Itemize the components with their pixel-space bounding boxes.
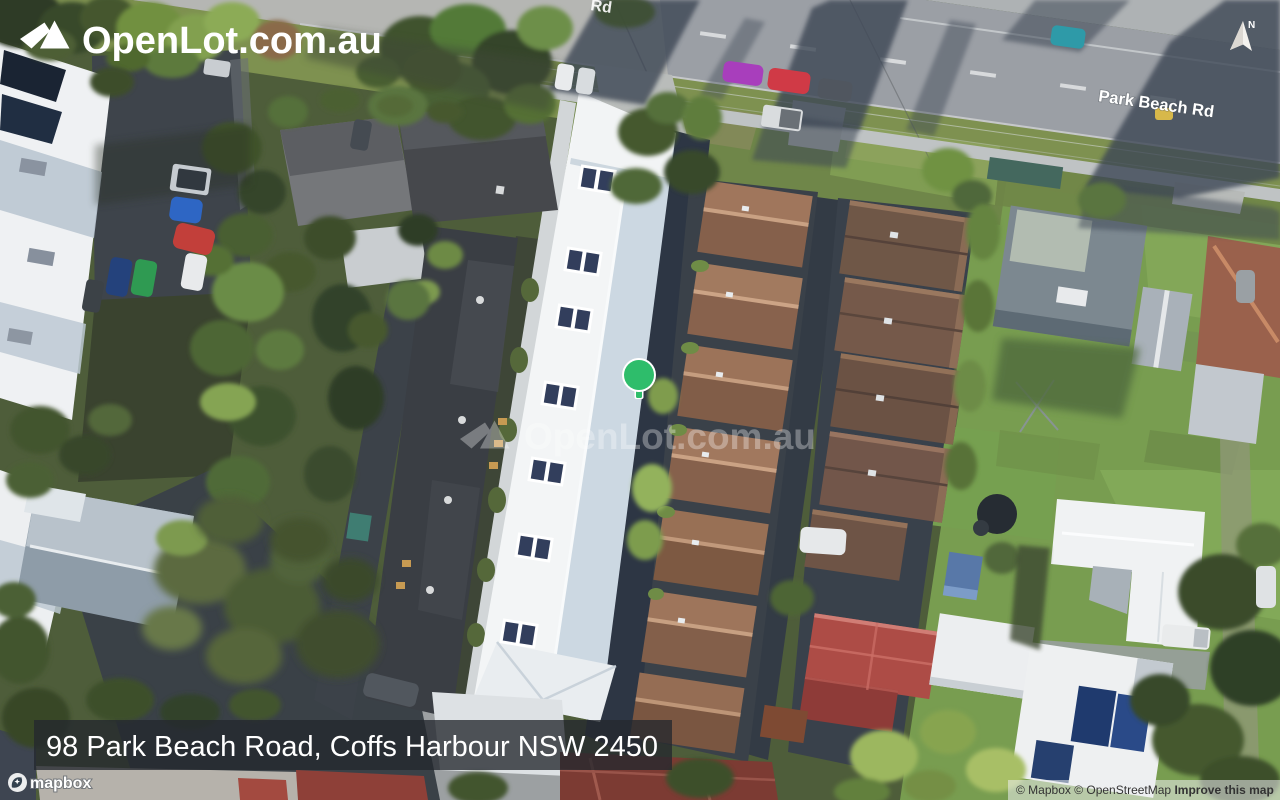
svg-text:N: N [1248,20,1255,31]
svg-text:OpenLot.com.au: OpenLot.com.au [524,416,816,457]
svg-text:98 Park Beach Road, Coffs Harb: 98 Park Beach Road, Coffs Harbour NSW 24… [46,731,658,763]
svg-text:© Mapbox © OpenStreetMap Impro: © Mapbox © OpenStreetMap Improve this ma… [1016,783,1274,797]
svg-text:mapbox: mapbox [30,775,91,792]
svg-text:OpenLot.com.au: OpenLot.com.au [82,20,382,62]
svg-text:Rd: Rd [589,0,612,17]
